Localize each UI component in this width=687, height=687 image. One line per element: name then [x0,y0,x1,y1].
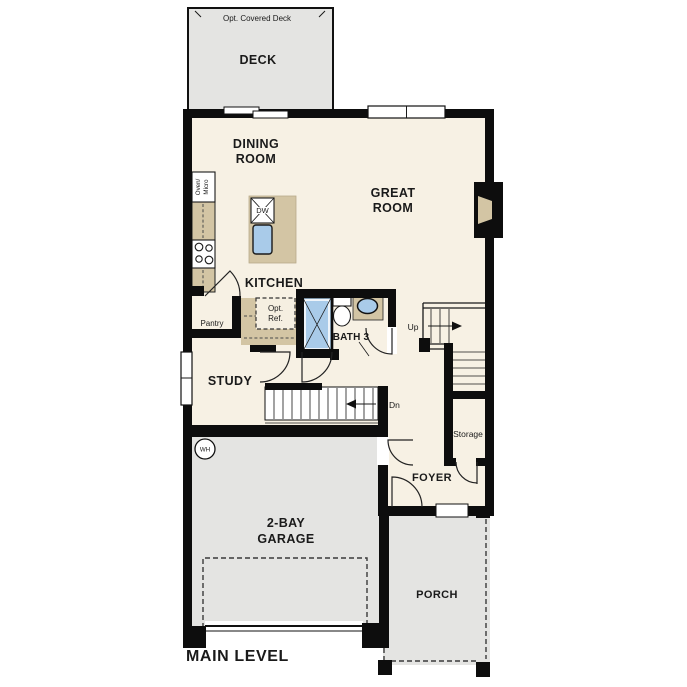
deck-label: DECK [239,53,276,67]
garage-label-line2: GARAGE [257,532,314,546]
wall-stairs-down-top [265,383,322,390]
garage-entry-opening [377,437,389,465]
porch-post-bottom-left [378,660,392,675]
sliding-door-panel [253,111,288,118]
burner-icon [205,256,213,264]
storage-label: Storage [453,429,483,439]
level-title: MAIN LEVEL [186,648,289,665]
wall-pantry-right [232,296,241,338]
wall-shower-left [296,289,304,355]
floor-plan: Opt. Covered Deck DECK DINING ROOM GREAT… [0,0,687,687]
wall-foyer-bottom [378,506,488,516]
kitchen-label: KITCHEN [245,276,303,290]
wall-bath-top [296,289,396,298]
porch-label: PORCH [416,589,458,601]
dining-room-label-line1: DINING [233,137,279,151]
front-door-opening [436,504,468,517]
wall-garage-corner-right [362,623,388,648]
garage-door-opening [205,621,363,647]
deck-option-label: Opt. Covered Deck [223,14,292,23]
bath3-label: BATH 3 [333,332,370,343]
stairs-up-label: Up [408,322,419,332]
burner-icon [196,256,202,262]
wall-storage-jamb-left [444,458,456,466]
wall-garage-corner-left [183,626,206,648]
wall-storage-jamb-right [476,458,488,466]
great-room-label-line2: ROOM [373,201,414,215]
great-room-label-line1: GREAT [371,186,416,200]
wall-storage-left [444,391,453,465]
opt-ref-label-line2: Ref. [268,314,283,323]
dishwasher-label: DW [256,206,269,215]
burner-icon [206,245,212,251]
wall-left-lower [183,437,192,648]
wall-counter-jamb [250,345,276,352]
cooktop [192,240,215,268]
porch-post-bottom-right [476,662,490,677]
wall-stairs-mid [444,343,453,396]
stairs-down-label: Dn [389,400,400,410]
garage-label-line1: 2-BAY [267,516,306,530]
burner-icon [195,243,203,251]
bath-sink [358,299,378,314]
opt-ref-label-line1: Opt. [268,304,283,313]
wall-kitchen-stub [191,286,204,296]
study-label: STUDY [208,374,253,388]
oven-micro-label-line2: Micro [203,179,210,195]
oven-micro-label-line1: Oven/ [195,178,202,195]
wall-bath-right [388,289,396,327]
foyer-label: FOYER [412,472,452,484]
wall-stairs-down-right [378,386,388,427]
wall-garage-top [183,425,388,437]
wall-stairs-corner [419,338,430,352]
dining-room-label-line2: ROOM [236,152,277,166]
water-heater-label: WH [200,447,210,454]
toilet-tank [333,297,351,306]
wall-right [485,109,494,516]
pantry-label: Pantry [200,319,223,328]
floor-plan-drawing: Opt. Covered Deck DECK DINING ROOM GREAT… [0,0,687,687]
toilet-bowl [334,306,351,326]
stairs-down [265,387,378,423]
kitchen-sink [253,225,272,254]
